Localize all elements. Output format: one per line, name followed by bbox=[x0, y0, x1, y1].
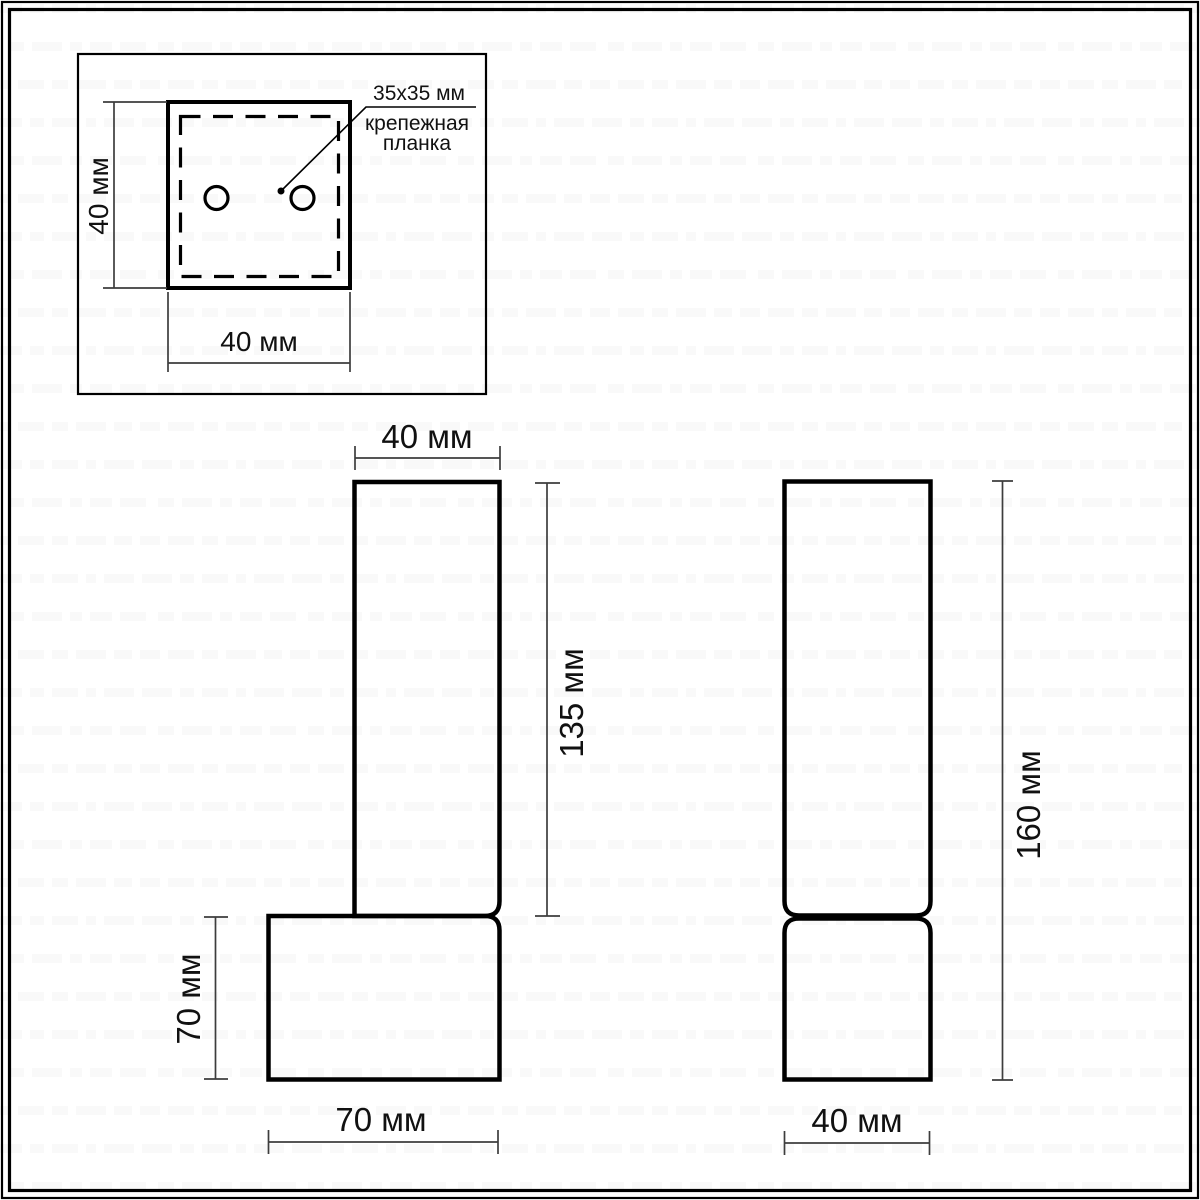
front-view-base-height-label: 70 мм bbox=[170, 953, 207, 1044]
top-view-width-label: 40 мм bbox=[220, 326, 297, 357]
plate-size-label: 35x35 мм bbox=[373, 82, 465, 105]
front-view-width-label: 40 мм bbox=[381, 418, 472, 455]
front-view-tube-height-label: 135 мм bbox=[553, 648, 590, 758]
side-view-width-label: 40 мм bbox=[811, 1102, 902, 1139]
side-view-total-height-label: 160 мм bbox=[1010, 750, 1047, 860]
dimension-drawing: 35x35 мм крепежная планка 40 мм 40 мм bbox=[0, 0, 1200, 1200]
plate-name-line2: планка bbox=[383, 132, 452, 155]
front-view-base-width-label: 70 мм bbox=[335, 1101, 426, 1138]
top-view-height-label: 40 мм bbox=[83, 157, 114, 234]
technical-drawing-page: 35x35 мм крепежная планка 40 мм 40 мм bbox=[0, 0, 1200, 1200]
